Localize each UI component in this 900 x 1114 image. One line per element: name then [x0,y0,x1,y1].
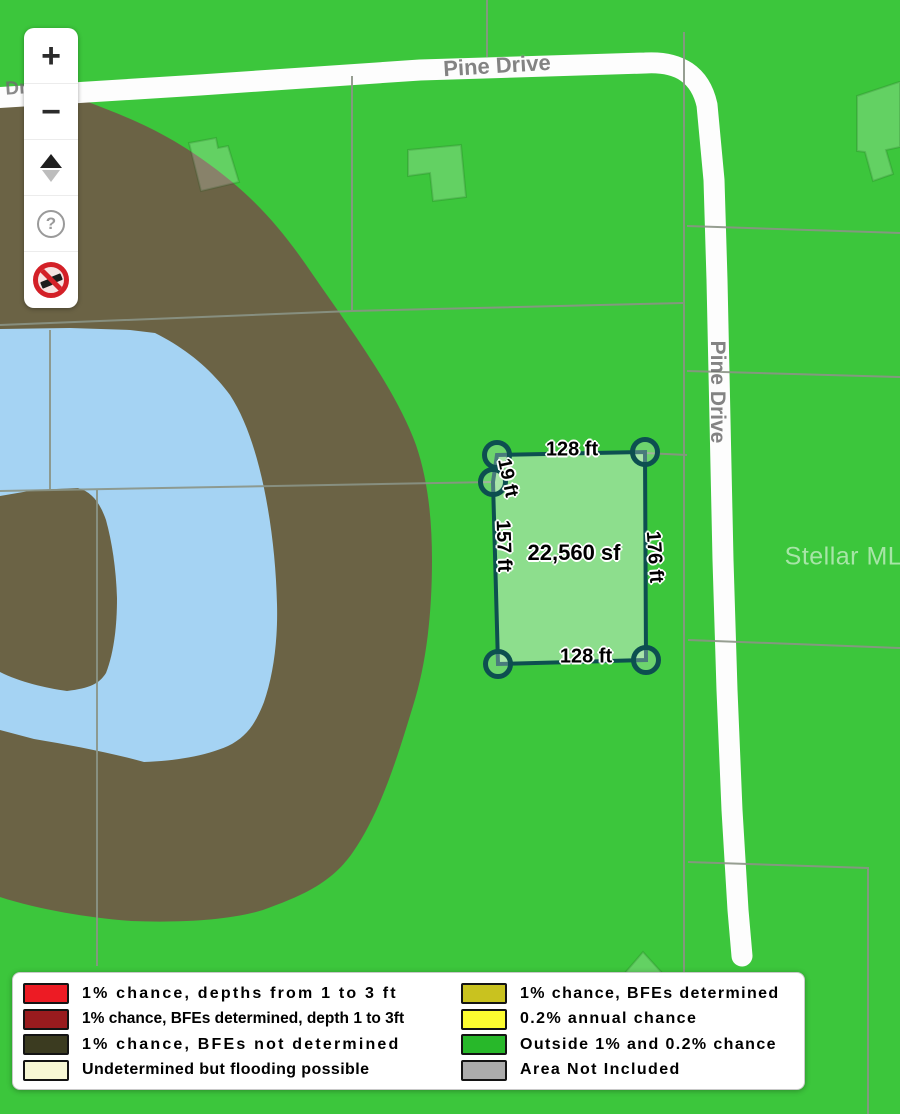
lot-area-label: 22,560 sf [528,540,621,566]
question-mark-icon: ? [37,210,65,238]
legend-row: 1% chance, BFEs not determined [23,1032,461,1057]
legend-row: Undetermined but flooding possible [23,1058,461,1083]
lot-dim-top: 128 ft [546,439,598,462]
legend-row: 1% chance, BFEs determined [461,981,798,1006]
legend-swatch [23,983,69,1004]
flood-legend: 1% chance, depths from 1 to 3 ft 1% chan… [12,972,805,1090]
lot-dim-left: 157 ft [491,519,516,572]
legend-row: 1% chance, BFEs determined, depth 1 to 3… [23,1007,461,1032]
road-label-pine-drive-side: Pine Drive [705,341,729,444]
legend-label: Undetermined but flooding possible [82,1061,369,1079]
legend-label: 1% chance, BFEs determined [520,985,780,1003]
zoom-in-button[interactable]: + [24,28,78,84]
legend-swatch [23,1060,69,1081]
legend-right-column: 1% chance, BFEs determined 0.2% annual c… [461,981,798,1083]
pan-updown-button[interactable] [24,140,78,196]
legend-label: Area Not Included [520,1061,681,1079]
legend-label: 1% chance, depths from 1 to 3 ft [82,985,398,1003]
zoom-out-button[interactable]: − [24,84,78,140]
lot-dim-right: 176 ft [641,530,668,584]
legend-label: 1% chance, BFEs determined, depth 1 to 3… [82,1010,404,1028]
flood-zone-1pct-peninsula [0,488,117,691]
legend-row: Area Not Included [461,1058,798,1083]
minus-icon: − [41,95,61,129]
legend-swatch [23,1034,69,1055]
legend-swatch [461,983,507,1004]
flood-map-viewport[interactable]: Dr Pine Drive Pine Drive Stellar MLS 128… [0,0,900,1114]
legend-row: 0.2% annual chance [461,1007,798,1032]
legend-label: Outside 1% and 0.2% chance [520,1036,777,1054]
legend-left-column: 1% chance, depths from 1 to 3 ft 1% chan… [23,981,461,1083]
legend-row: 1% chance, depths from 1 to 3 ft [23,981,461,1006]
plus-icon: + [41,39,61,73]
legend-swatch [461,1060,507,1081]
legend-swatch [461,1034,507,1055]
legend-swatch [23,1009,69,1030]
no-satellite-icon [33,262,69,298]
legend-label: 1% chance, BFEs not determined [82,1036,401,1054]
lot-dim-bottom: 128 ft [560,646,612,669]
help-button[interactable]: ? [24,196,78,252]
stellar-mls-watermark: Stellar MLS [785,543,900,572]
flood-map-canvas[interactable] [0,0,900,1114]
legend-swatch [461,1009,507,1030]
legend-label: 0.2% annual chance [520,1010,697,1028]
satellite-toggle-button[interactable] [24,252,78,308]
map-controls-panel: + − ? [24,28,78,308]
up-down-arrows-icon [40,154,62,182]
legend-row: Outside 1% and 0.2% chance [461,1032,798,1057]
